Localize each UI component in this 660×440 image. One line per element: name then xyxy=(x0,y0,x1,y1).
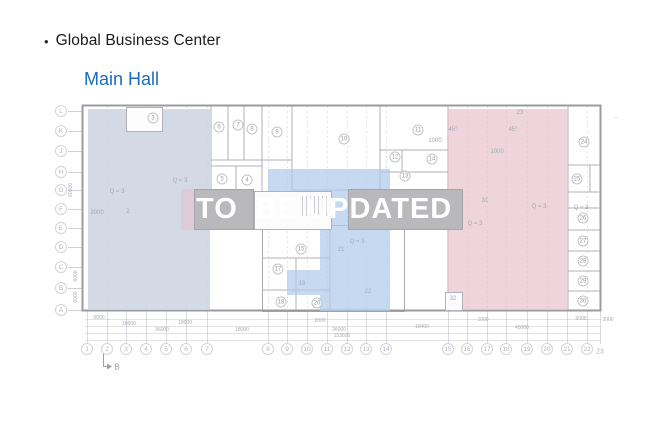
zone-right-hall xyxy=(448,109,568,310)
zone-middle-hall-lower xyxy=(320,228,390,311)
dimension-line xyxy=(85,340,601,341)
section-marker-arrow xyxy=(104,353,113,370)
dimension-line xyxy=(85,319,601,320)
dimension-line xyxy=(85,333,601,334)
zone-middle-hall-step xyxy=(287,270,320,295)
room-32-box xyxy=(445,292,463,311)
bullet-icon: • xyxy=(44,35,49,48)
hall-subtitle: Main Hall xyxy=(84,69,159,90)
zone-fragment xyxy=(181,189,194,230)
room-3-notch xyxy=(126,107,163,132)
slide-title-row: • Global Business Center xyxy=(44,32,221,50)
watermark-text: TO BE UPDATED xyxy=(196,190,452,228)
dimension-line xyxy=(85,326,601,327)
page-title: Global Business Center xyxy=(56,32,221,50)
